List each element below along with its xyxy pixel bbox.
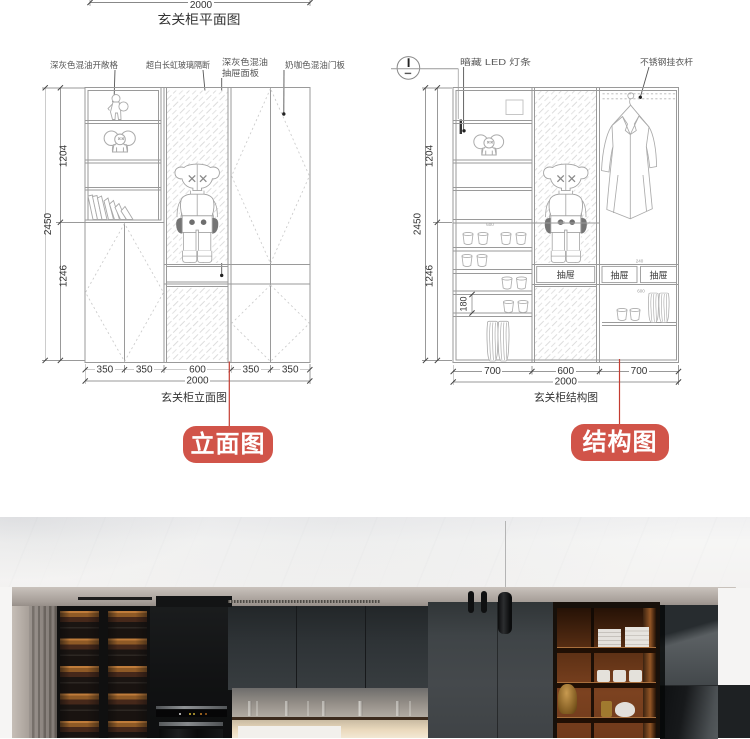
svg-text:2000: 2000	[555, 377, 578, 388]
svg-text:暗藏 LED 灯条: 暗藏 LED 灯条	[460, 56, 532, 67]
svg-text:2000: 2000	[190, 0, 213, 11]
svg-text:1204: 1204	[59, 144, 70, 167]
svg-text:2000: 2000	[186, 376, 209, 387]
svg-text:2450: 2450	[43, 212, 54, 235]
svg-text:350: 350	[282, 364, 299, 375]
svg-text:700: 700	[631, 366, 648, 377]
svg-text:350: 350	[243, 364, 260, 375]
svg-text:抽屉: 抽屉	[610, 269, 628, 280]
svg-text:600: 600	[486, 222, 494, 227]
svg-text:600: 600	[189, 364, 206, 375]
svg-text:深灰色混油开敞格: 深灰色混油开敞格	[50, 59, 118, 70]
svg-text:深灰色混油: 深灰色混油	[222, 56, 268, 67]
svg-text:抽屉: 抽屉	[557, 269, 575, 280]
svg-text:不锈钢挂衣杆: 不锈钢挂衣杆	[640, 56, 693, 67]
svg-text:180: 180	[459, 296, 469, 311]
svg-text:350: 350	[136, 364, 153, 375]
svg-text:玄关柜立面图: 玄关柜立面图	[161, 390, 227, 404]
svg-text:240: 240	[636, 259, 644, 264]
svg-text:350: 350	[97, 364, 114, 375]
svg-text:抽屉: 抽屉	[649, 269, 667, 280]
svg-text:1246: 1246	[59, 264, 70, 287]
svg-text:1204: 1204	[425, 144, 436, 167]
svg-text:2450: 2450	[413, 212, 424, 235]
svg-text:700: 700	[484, 366, 501, 377]
svg-text:600: 600	[637, 289, 645, 294]
svg-text:1246: 1246	[425, 264, 436, 287]
svg-text:玄关柜平面图: 玄关柜平面图	[158, 12, 241, 27]
svg-text:玄关柜结构图: 玄关柜结构图	[534, 390, 598, 404]
svg-text:抽屉面板: 抽屉面板	[222, 67, 259, 78]
svg-text:超白长虹玻璃隔断: 超白长虹玻璃隔断	[146, 59, 210, 70]
svg-text:奶咖色混油门板: 奶咖色混油门板	[285, 59, 345, 70]
svg-text:600: 600	[557, 366, 574, 377]
svg-text:600: 600	[557, 220, 565, 225]
